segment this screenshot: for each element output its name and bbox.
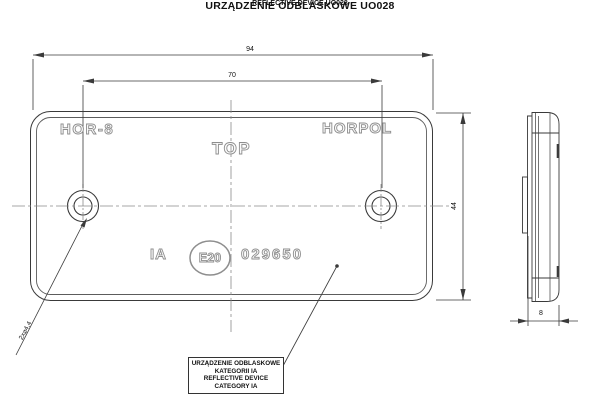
dimension-overall-width: 94 [210, 46, 290, 53]
note-line-pl-2: KATEGORII IA [190, 368, 282, 376]
marking-top-orientation: TOP [212, 139, 251, 159]
dimension-arrows [33, 53, 569, 324]
marking-e-approval: E20 [190, 241, 230, 275]
technical-drawing-page: URZĄDZENIE ODBLASKOWE UO028 REFLECTIVE D… [0, 0, 600, 406]
dimension-overall-height: 44 [451, 190, 467, 222]
marking-model: HOR-8 [60, 121, 114, 138]
note-line-en-2: CATEGORY IA [190, 383, 282, 391]
marking-approval-number: 029650 [241, 246, 303, 263]
marking-category: IA [150, 246, 167, 263]
category-note-box: URZĄDZENIE ODBLASKOWE KATEGORII IA REFLE… [188, 357, 284, 394]
note-line-en-1: REFLECTIVE DEVICE [190, 375, 282, 383]
drawing-linework [0, 0, 600, 406]
side-view-mount-boss [523, 177, 528, 233]
marking-brand: HORPOL [322, 120, 392, 137]
note-line-pl-1: URZĄDZENIE ODBLASKOWE [190, 360, 282, 368]
dimension-thickness: 8 [531, 310, 551, 317]
dimension-hole-spacing: 70 [192, 72, 272, 79]
note-leader-dot [335, 264, 339, 268]
dimension-lines [33, 55, 578, 326]
drawing-title-en: REFLECTIVE DEVICE UO028 [0, 0, 600, 7]
leader-lines [16, 218, 339, 366]
